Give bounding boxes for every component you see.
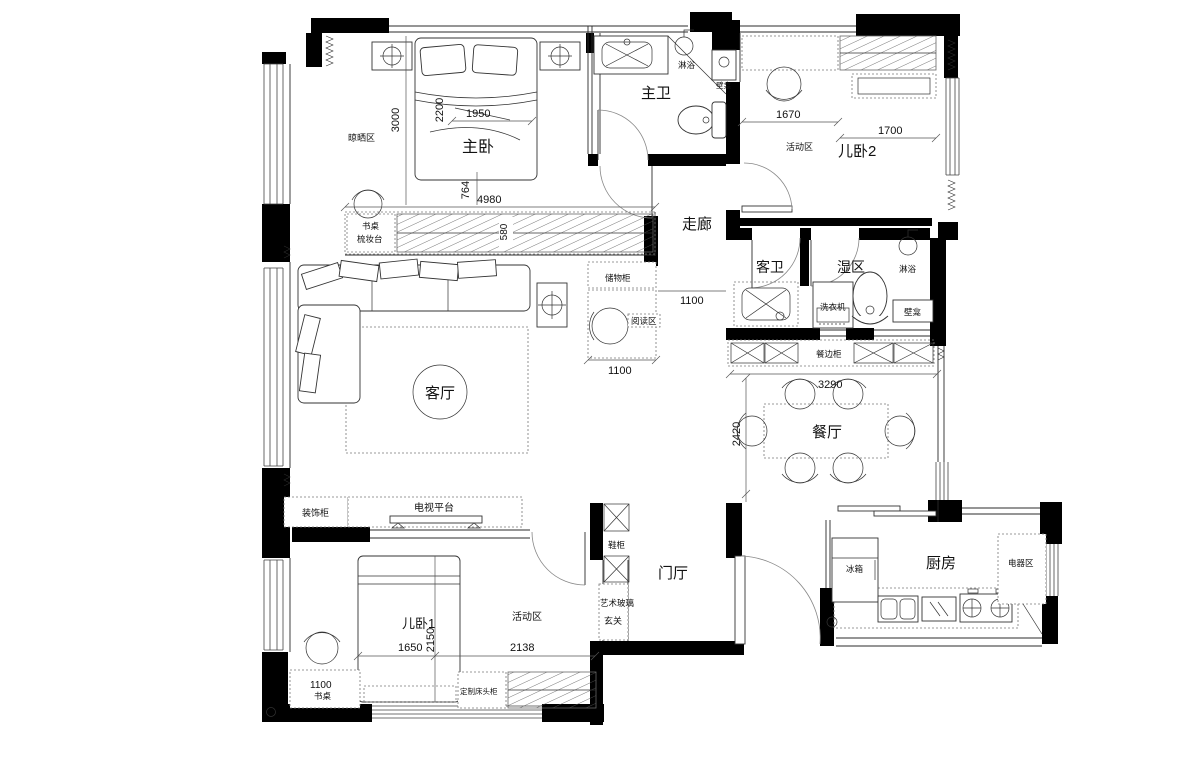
label-decor-cabinet: 装饰柜: [302, 507, 329, 518]
label-dining-room: 餐厅: [812, 424, 842, 441]
dim-1100-desk: 1100: [310, 680, 332, 691]
niche-master: [712, 50, 736, 80]
dim-1100-reading: 1100: [608, 365, 632, 377]
cutting-board: [922, 597, 956, 621]
master-bath-door: [598, 110, 648, 160]
label-fridge: 冰箱: [846, 564, 864, 574]
dining-chair: [782, 453, 818, 483]
guest-bath-vanity: [734, 282, 798, 326]
kids2-east-window: [946, 78, 959, 175]
sofa: [296, 259, 530, 403]
label-wet-area: 湿区: [837, 259, 865, 275]
floor-plan-drawing: 主卧 主卫 儿卧2 走廊 客卫 湿区 客厅 餐厅 厨房 门厅 儿卧1 晾晒区 活…: [0, 0, 1200, 777]
dining-east-window: [936, 462, 948, 500]
dim-2200: 2200: [434, 98, 446, 122]
dim-2150: 2150: [425, 628, 437, 652]
kids2-chair: [766, 67, 802, 101]
master-toilet: [678, 102, 726, 138]
wet-area-toilet: [852, 272, 888, 324]
label-dresser: 梳妆台: [357, 234, 383, 244]
label-corridor: 走廊: [682, 216, 712, 233]
label-storage-cabinet: 储物柜: [605, 273, 631, 283]
dim-1670: 1670: [776, 109, 800, 121]
kitchen-sliding-door: [838, 506, 936, 516]
dim-1700: 1700: [878, 125, 902, 137]
dim-1950: 1950: [466, 108, 490, 120]
shoe-cabinet-box: [604, 556, 629, 582]
kids1-door: [532, 532, 585, 585]
dim-2138: 2138: [510, 642, 534, 654]
sideboard-box: [854, 343, 893, 363]
label-shower-master: 淋浴: [678, 60, 696, 70]
label-living-room: 客厅: [425, 385, 455, 402]
label-tv-platform: 电视平台: [414, 501, 454, 514]
master-bath-vanity: [594, 36, 668, 74]
dining-chair: [885, 413, 915, 449]
reading-chair: [589, 308, 628, 344]
label-art-glass: 艺术玻璃: [600, 598, 635, 608]
entry-partition-box: [599, 584, 628, 640]
sideboard-box: [894, 343, 933, 363]
dim-764: 764: [460, 181, 472, 199]
sideboard-box: [731, 343, 764, 363]
sideboard-box: [765, 343, 798, 363]
living-room-area: [296, 259, 567, 453]
label-desk1: 书桌: [314, 691, 332, 701]
dining-chair: [782, 379, 818, 409]
living-room-window: [264, 268, 283, 466]
label-appliance-area: 电器区: [1008, 558, 1034, 568]
label-foyer: 门厅: [658, 565, 688, 582]
label-niche-wet: 壁龛: [904, 307, 922, 317]
label-kids-room2: 儿卧2: [838, 143, 876, 160]
dim-1650: 1650: [398, 642, 422, 654]
label-guest-bath: 客卫: [756, 259, 784, 275]
label-activity-zone1: 活动区: [512, 611, 542, 623]
balcony-window: [264, 64, 283, 204]
label-sideboard: 餐边柜: [816, 349, 842, 359]
kids2-cabinet: [742, 36, 838, 70]
dim-580: 580: [499, 223, 510, 240]
dim-4980: 4980: [477, 194, 501, 206]
label-custom-headboard: 定制床头柜: [460, 686, 498, 696]
label-kitchen: 厨房: [926, 555, 956, 572]
dining-chair: [830, 453, 866, 483]
kids-room2-area: [742, 36, 936, 101]
kitchen-area: [827, 534, 1046, 634]
kitchen-sink: [878, 596, 918, 622]
label-master-bedroom: 主卧: [462, 138, 494, 156]
label-shower-wet: 淋浴: [899, 264, 917, 274]
dim-1100-corridor: 1100: [680, 295, 704, 307]
dim-3000: 3000: [390, 108, 402, 132]
label-drying-zone: 晾晒区: [348, 132, 375, 143]
entry-door: [735, 556, 820, 644]
master-bedroom-door: [600, 166, 652, 218]
label-desk-master: 书桌: [362, 221, 380, 231]
kids2-desk: [852, 74, 936, 98]
dim-2420: 2420: [731, 422, 743, 446]
label-activity-zone2: 活动区: [786, 141, 813, 152]
label-master-bath: 主卫: [641, 85, 671, 102]
shoe-cabinet-box: [604, 504, 629, 531]
label-shoe-cabinet: 鞋柜: [608, 540, 626, 550]
kids1-west-window: [264, 560, 283, 650]
dim-3290: 3290: [818, 379, 842, 391]
label-reading-zone: 阅读区: [631, 316, 657, 326]
kids1-chair: [304, 632, 340, 664]
side-table: [537, 283, 567, 327]
nightstand-right: [540, 42, 580, 70]
appliance-cabinet-box: [998, 534, 1046, 604]
label-washing-machine: 洗衣机: [820, 302, 846, 312]
kitchen-east-window: [1046, 544, 1058, 596]
label-entry-zone: 玄关: [604, 615, 622, 626]
kids2-door: [742, 163, 792, 212]
floor-plan-canvas: 主卧 主卫 儿卧2 走廊 客卫 湿区 客厅 餐厅 厨房 门厅 儿卧1 晾晒区 活…: [0, 0, 1200, 777]
shower-head-master: [675, 30, 694, 55]
label-niche-master: 壁龛: [716, 80, 731, 90]
